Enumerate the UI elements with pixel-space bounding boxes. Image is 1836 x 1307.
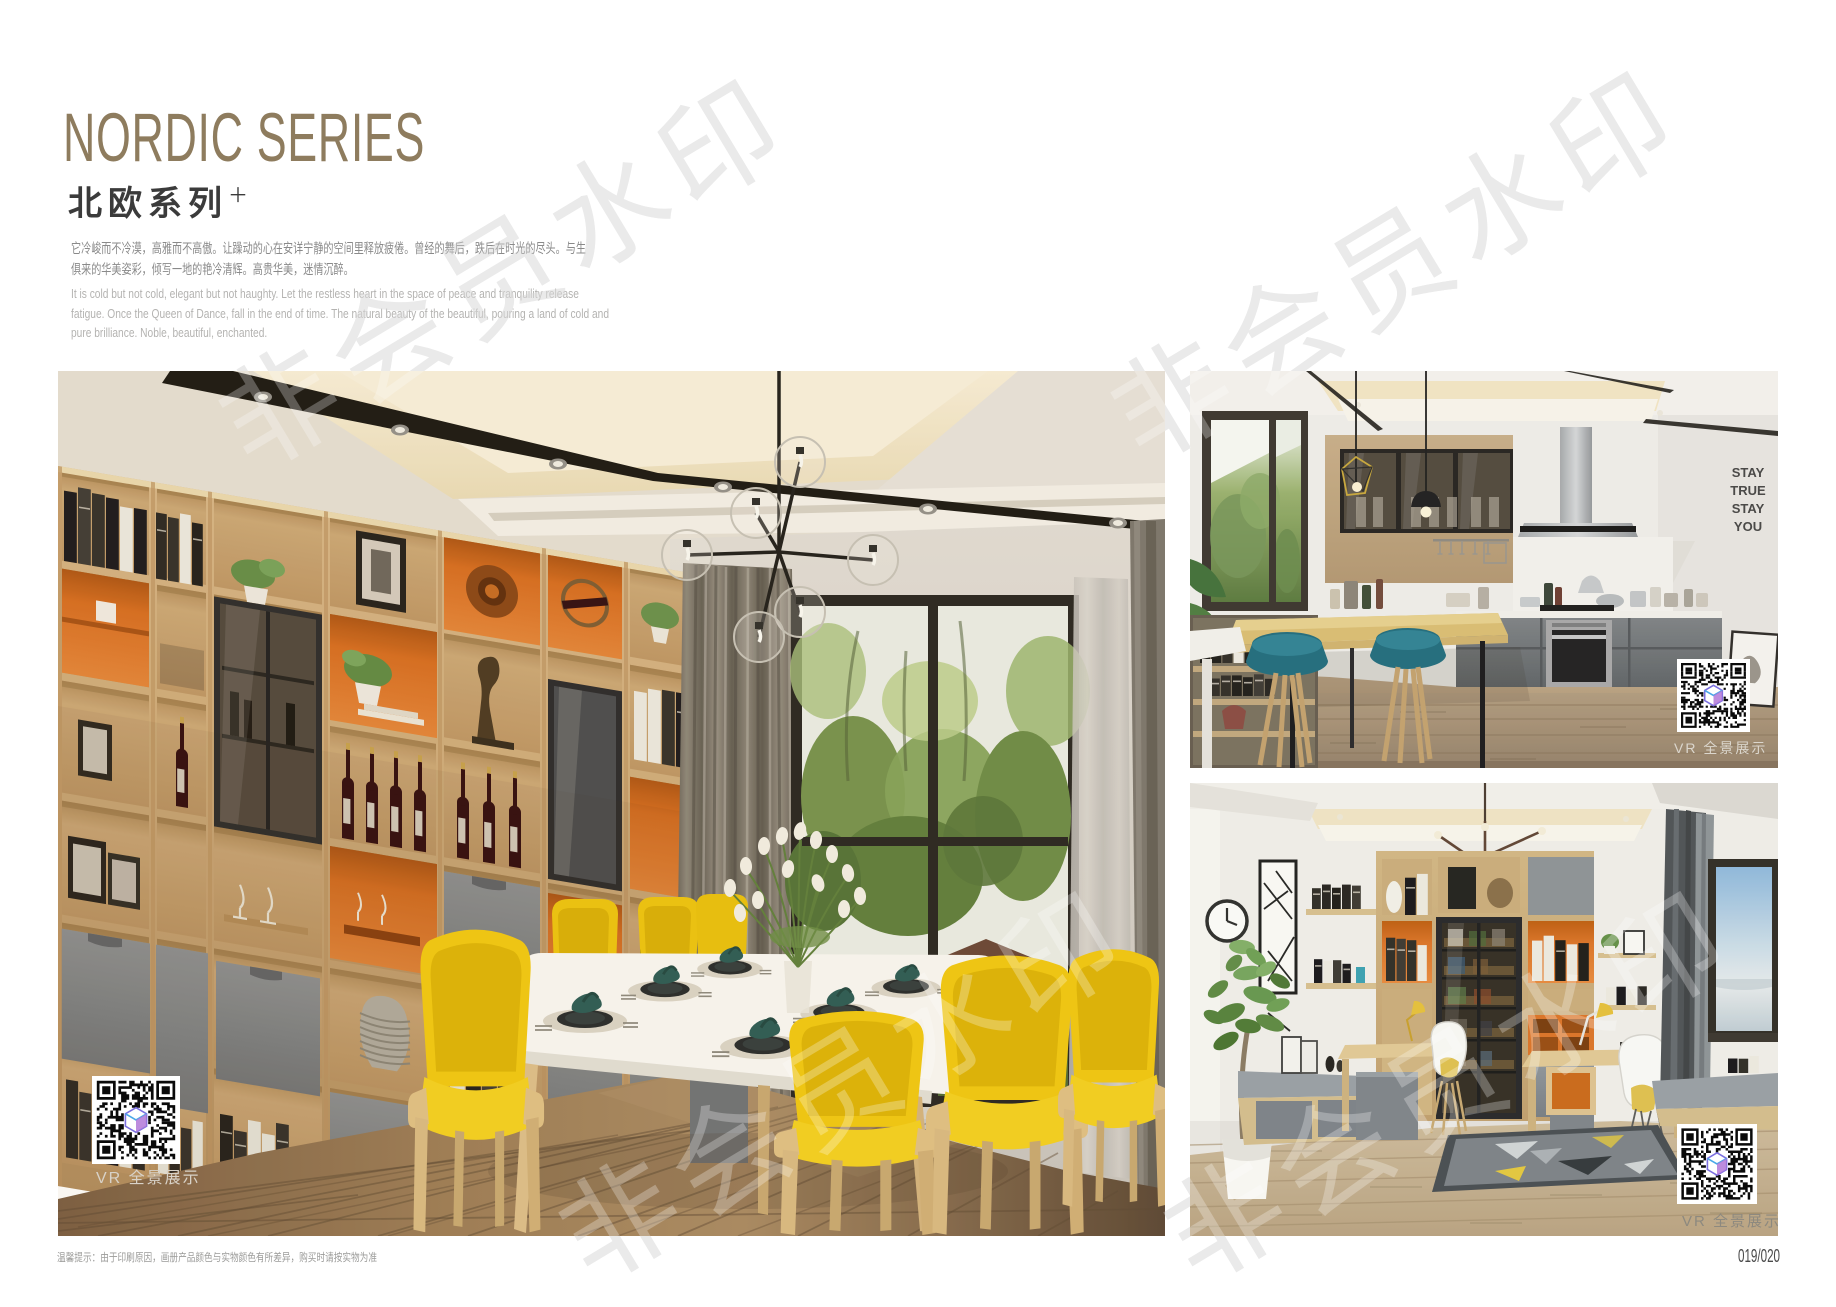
- svg-text:VR 全景展示: VR 全景展示: [1682, 1212, 1778, 1230]
- svg-text:VR 全景展示: VR 全景展示: [96, 1169, 201, 1187]
- svg-text:VR 全景展示: VR 全景展示: [1674, 740, 1767, 756]
